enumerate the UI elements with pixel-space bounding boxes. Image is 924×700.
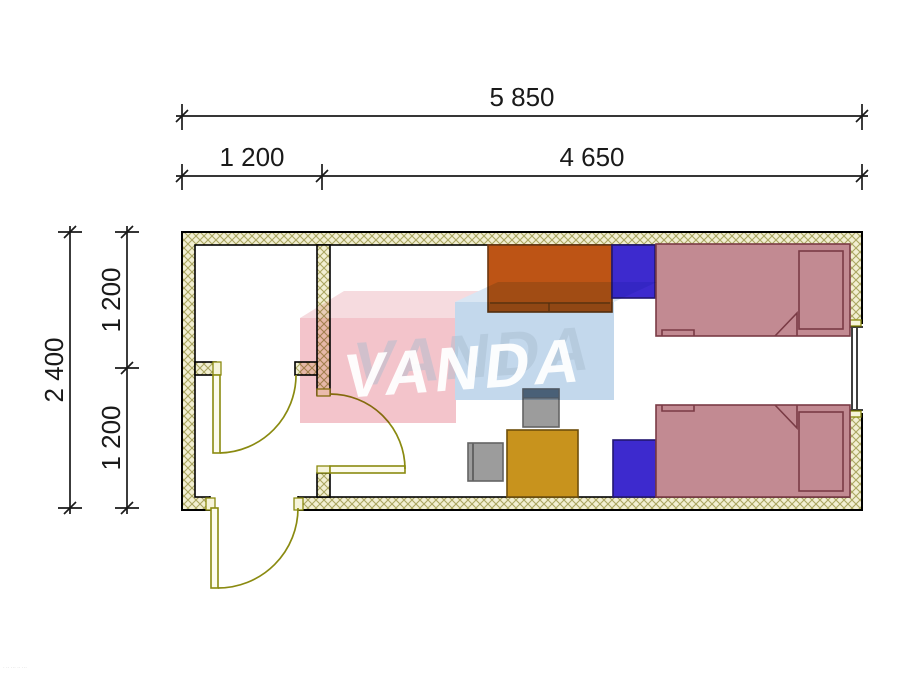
dim-left-bay-label: 1 200: [219, 142, 284, 172]
desk-chair-side: [468, 443, 503, 481]
dim-overall-width-label: 5 850: [489, 82, 554, 112]
floor-plan-canvas: 5 850 1 200 4 650 2 400 1 200 1 200: [0, 0, 924, 700]
partition-wall-stub: [317, 473, 330, 497]
dimension-overall-width: 5 850: [176, 82, 868, 130]
dimension-bay-depths: 1 200 1 200: [96, 226, 139, 514]
bed-top: [656, 244, 850, 336]
entrance-opening: [210, 494, 298, 513]
corner-note: · ·· ··· ·· ···: [3, 665, 27, 671]
dimension-overall-depth: 2 400: [39, 226, 82, 514]
desk: [507, 430, 578, 497]
dim-overall-depth-label: 2 400: [39, 337, 69, 402]
dim-upper-bay-label: 1 200: [96, 267, 126, 332]
dimension-bay-widths: 1 200 4 650: [176, 142, 868, 190]
bed-bottom: [656, 405, 850, 497]
nightstand-bottom: [613, 440, 656, 497]
dim-main-room-label: 4 650: [559, 142, 624, 172]
dim-lower-bay-label: 1 200: [96, 405, 126, 470]
floor-plan-page: 5 850 1 200 4 650 2 400 1 200 1 200: [0, 0, 924, 700]
